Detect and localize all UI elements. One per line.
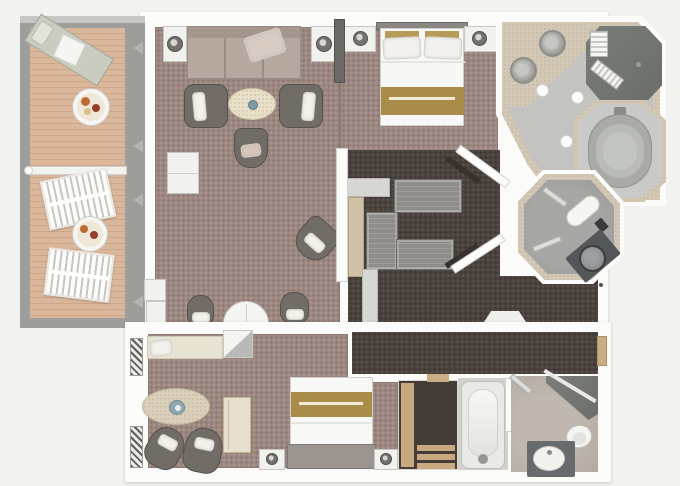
chair-pillow <box>156 433 179 453</box>
wardrobe-counter-top <box>394 179 462 213</box>
door-arrow-icon <box>133 42 143 54</box>
food-item <box>90 231 98 239</box>
bed-runner <box>381 87 464 115</box>
bathtub-basin <box>468 389 498 457</box>
chair-pillow <box>240 143 262 159</box>
wardrobe-shelf <box>417 445 455 451</box>
veranda-dining-table <box>72 88 110 126</box>
desk-chair <box>234 128 268 168</box>
bed-pillow <box>382 36 421 60</box>
wardrobe-counter-left <box>366 212 398 270</box>
runner-stripe <box>389 97 455 100</box>
deck-chair <box>43 247 114 303</box>
desk-line <box>228 400 229 450</box>
bed-pillow <box>423 36 462 60</box>
nightstand-lamp <box>380 453 392 465</box>
oval-rug <box>142 388 210 425</box>
vanity-counter-tan <box>348 197 364 277</box>
cabinet-line <box>168 173 198 174</box>
bathroom-door-threshold <box>427 374 449 382</box>
vanity-sink <box>539 30 566 57</box>
desk-cabinet <box>223 397 251 453</box>
oval-coffee-table <box>228 88 276 120</box>
living-bedroom-partition <box>334 19 345 83</box>
bench-pillow <box>149 339 173 358</box>
shower-drain <box>636 62 641 67</box>
table-lamp <box>167 36 183 52</box>
sofa-seam <box>224 38 226 78</box>
window-bench <box>147 336 223 359</box>
wall-column <box>536 84 549 97</box>
food-item <box>81 97 90 106</box>
sofa-back <box>188 27 300 38</box>
food-item <box>80 225 88 233</box>
duvet-fold <box>381 61 465 63</box>
entry-door <box>597 336 607 366</box>
wardrobe-shelf <box>417 454 455 460</box>
sink <box>533 446 565 471</box>
bed-headboard <box>287 444 376 469</box>
sink-faucet <box>547 450 552 455</box>
table-centerpiece <box>248 100 258 110</box>
vanity-sink <box>510 57 537 84</box>
lounger-pillow <box>30 20 54 47</box>
lounger-towel <box>53 34 86 66</box>
window-hatch <box>130 426 143 468</box>
food-item <box>92 104 100 112</box>
door-arrow-icon <box>133 296 143 308</box>
bathtub-faucet <box>478 454 488 464</box>
corner-shelf <box>223 330 253 358</box>
nightstand-lamp <box>353 31 368 46</box>
sofa <box>187 26 301 79</box>
table-plate <box>77 93 105 121</box>
deck-chair-bar <box>46 190 109 207</box>
chair-pillow <box>303 231 327 255</box>
wall-cabinet <box>144 279 166 301</box>
window-hatch <box>130 338 143 376</box>
bathtub-faucet <box>614 107 626 115</box>
food-item <box>84 108 91 115</box>
runner-stripe <box>299 402 363 405</box>
hallway-door-handle <box>599 283 603 287</box>
queen-bed <box>380 28 464 126</box>
door-arrow-icon <box>133 194 143 206</box>
wardrobe <box>398 380 458 470</box>
shower-bench <box>590 31 608 57</box>
veranda-dining-table <box>72 216 108 252</box>
wardrobe-shelf <box>417 463 455 469</box>
chair-pillow <box>286 309 304 320</box>
wall-column <box>560 135 573 148</box>
tub-chair <box>280 292 309 323</box>
lower-hallway-floor <box>352 332 598 374</box>
armchair <box>279 84 323 128</box>
bathtub-water-center <box>603 132 637 170</box>
armchair-pillow <box>301 91 316 121</box>
bed-runner <box>291 392 372 417</box>
table-lamp <box>316 36 332 52</box>
nightstand-lamp <box>266 453 278 465</box>
floor-plan <box>0 0 680 486</box>
duvet-fold <box>291 422 372 424</box>
glass-table <box>169 400 185 415</box>
chair-pillow <box>193 436 215 452</box>
corner-sink <box>579 245 606 272</box>
dressing-area-west-wall <box>336 148 348 282</box>
nightstand-lamp <box>472 31 487 46</box>
wall-column <box>571 91 584 104</box>
armchair-pillow <box>192 91 207 121</box>
wardrobe-door-wood <box>401 383 414 467</box>
glass-table-center <box>175 405 181 411</box>
bar-cabinet <box>167 152 199 194</box>
door-arrow-icon <box>133 140 143 152</box>
armchair <box>184 84 228 128</box>
bathtub <box>461 381 505 469</box>
corner-shelf-shade <box>224 331 252 357</box>
veranda-divider-knob <box>24 166 33 175</box>
counter-light-lower <box>362 269 378 323</box>
deck-chair-bar <box>48 269 110 281</box>
